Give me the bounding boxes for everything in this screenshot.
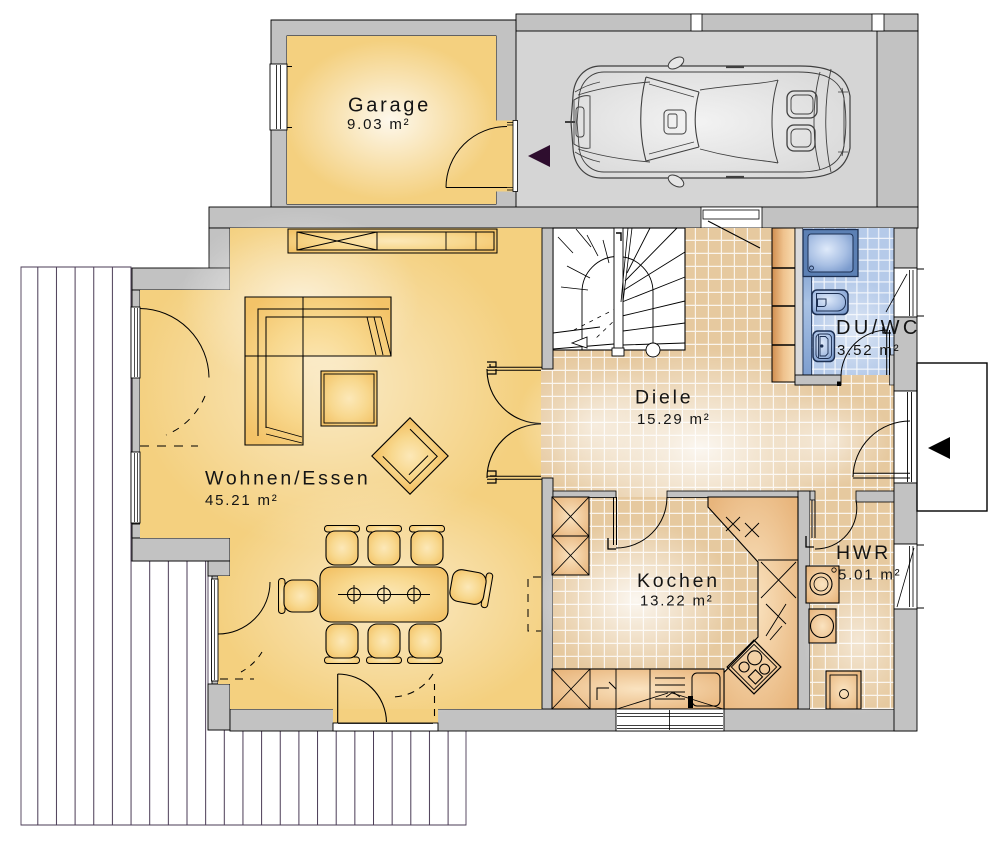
svg-text:DU/WC: DU/WC	[836, 317, 921, 339]
svg-text:Diele: Diele	[635, 387, 693, 409]
svg-text:13.22 m²: 13.22 m²	[640, 593, 714, 610]
svg-text:3.52 m²: 3.52 m²	[837, 342, 900, 359]
svg-text:45.21 m²: 45.21 m²	[205, 492, 279, 509]
svg-text:15.29 m²: 15.29 m²	[637, 411, 711, 428]
svg-text:Garage: Garage	[348, 95, 431, 117]
svg-text:Kochen: Kochen	[637, 570, 720, 592]
svg-text:Wohnen/Essen: Wohnen/Essen	[205, 468, 371, 490]
svg-text:5.01 m²: 5.01 m²	[838, 567, 901, 584]
svg-text:HWR: HWR	[836, 542, 891, 564]
svg-text:9.03 m²: 9.03 m²	[347, 116, 410, 133]
